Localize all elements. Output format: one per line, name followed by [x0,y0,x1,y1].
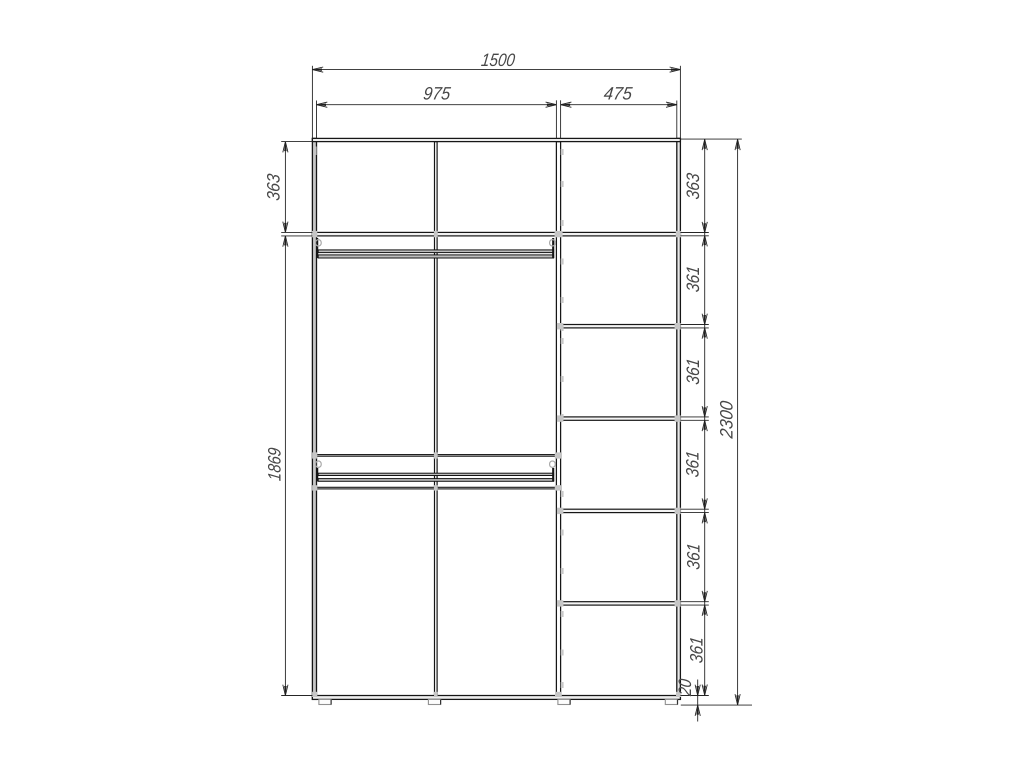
svg-text:1500: 1500 [480,50,516,70]
svg-text:361: 361 [686,636,706,664]
svg-text:363: 363 [264,173,284,202]
svg-text:361: 361 [683,265,703,293]
svg-text:361: 361 [683,357,703,385]
svg-text:475: 475 [603,83,634,103]
svg-text:361: 361 [684,542,704,570]
svg-text:361: 361 [683,450,703,478]
svg-text:20: 20 [675,678,695,698]
svg-text:975: 975 [422,83,452,103]
svg-text:1869: 1869 [265,446,285,481]
svg-text:2300: 2300 [717,400,737,440]
svg-text:363: 363 [683,172,703,200]
